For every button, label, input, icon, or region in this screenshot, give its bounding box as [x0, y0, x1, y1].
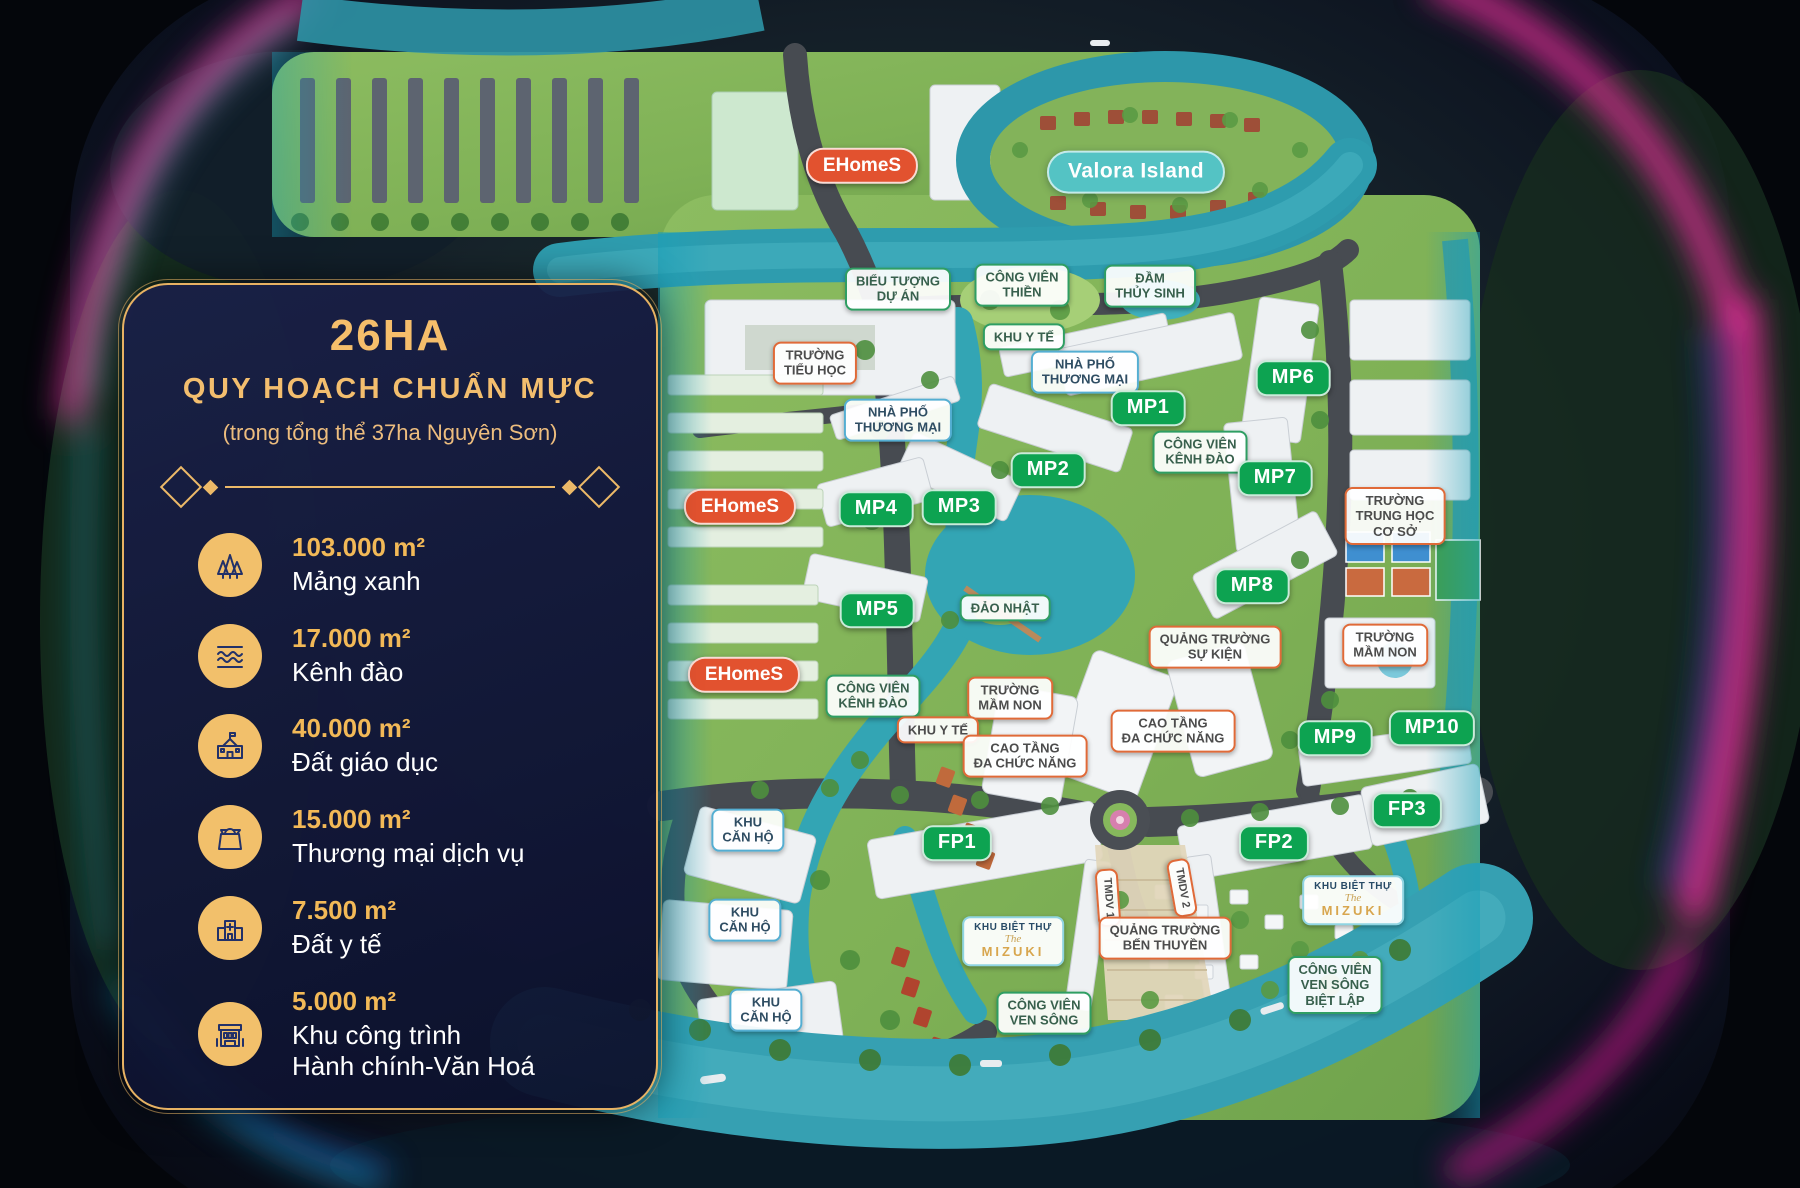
- mizuki-label-line: The: [1314, 893, 1392, 903]
- stat-value: 103.000 m²: [292, 532, 425, 563]
- stat-label: Thương mại dịch vụ: [292, 838, 524, 870]
- page-title: 26HA: [162, 311, 618, 361]
- map-label: KHU CĂN HỘ: [711, 809, 784, 852]
- map-label: BIỂU TƯỢNG DỰ ÁN: [845, 268, 951, 311]
- school-icon: [198, 714, 262, 778]
- trees-icon: [198, 533, 262, 597]
- zone-badge: MP3: [922, 489, 997, 525]
- stat-value: 7.500 m²: [292, 895, 396, 926]
- zone-badge: MP7: [1238, 460, 1313, 496]
- map-label: CÔNG VIÊN VEN SÔNG: [997, 992, 1092, 1035]
- map-label: ĐẢO NHẬT: [960, 594, 1051, 621]
- zone-badge: FP3: [1372, 792, 1442, 828]
- civic-building-icon: [198, 1002, 262, 1066]
- map-label: QUẢNG TRƯỜNG SỰ KIỆN: [1149, 626, 1282, 669]
- zone-badge: Valora Island: [1047, 151, 1225, 194]
- panel-stat-item: 5.000 m²Khu công trình Hành chính-Văn Ho…: [162, 986, 618, 1083]
- map-label: TRƯỜNG MẦM NON: [1342, 624, 1428, 667]
- zone-badge: MP4: [839, 491, 914, 527]
- map-label: NHÀ PHỐ THƯƠNG MẠI: [1031, 351, 1139, 394]
- map-label: CAO TẦNG ĐA CHỨC NĂNG: [1111, 710, 1236, 753]
- zone-badge: MP9: [1298, 720, 1373, 756]
- zone-badge: MP1: [1111, 390, 1186, 426]
- zone-badge: EHomeS: [688, 657, 800, 693]
- mizuki-label-line: MIZUKI: [974, 944, 1052, 959]
- zone-badge: MP5: [840, 592, 915, 628]
- diamond-ornament: [203, 479, 219, 495]
- zone-badge: MP8: [1215, 568, 1290, 604]
- panel-subtitle: QUY HOẠCH CHUẨN MỰC: [162, 373, 618, 406]
- zone-badge: EHomeS: [806, 148, 918, 184]
- zone-badge: MP10: [1389, 710, 1475, 746]
- map-label: KHU Y TẾ: [983, 323, 1065, 350]
- info-panel: 26HA QUY HOẠCH CHUẨN MỰC (trong tổng thể…: [122, 283, 658, 1110]
- map-label: CÔNG VIÊN THIỀN: [975, 264, 1070, 307]
- stat-label: Khu công trình Hành chính-Văn Hoá: [292, 1020, 535, 1083]
- panel-stat-item: 15.000 m²Thương mại dịch vụ: [162, 804, 618, 870]
- diamond-ornament: [562, 479, 578, 495]
- mizuki-label-line: MIZUKI: [1314, 903, 1392, 918]
- map-label: KHU CĂN HỘ: [729, 989, 802, 1032]
- panel-note: (trong tổng thể 37ha Nguyên Sơn): [162, 420, 618, 446]
- map-label: TRƯỜNG TRUNG HỌC CƠ SỞ: [1345, 487, 1446, 545]
- map-label: CÔNG VIÊN KÊNH ĐÀO: [826, 675, 921, 718]
- stat-value: 17.000 m²: [292, 623, 411, 654]
- zone-badge: MP2: [1011, 452, 1086, 488]
- map-label: TMDV 2: [1166, 857, 1199, 918]
- panel-stat-item: 103.000 m²Mảng xanh: [162, 532, 618, 598]
- diamond-ornament: [160, 466, 202, 508]
- stat-value: 5.000 m²: [292, 986, 535, 1017]
- map-label: ĐẦM THỦY SINH: [1104, 265, 1196, 308]
- shopping-bag-icon: [198, 805, 262, 869]
- map-label: KHU BIỆT THỰTheMIZUKI: [962, 916, 1064, 966]
- map-label: KHU CĂN HỘ: [708, 899, 781, 942]
- hospital-icon: [198, 896, 262, 960]
- divider-line: [225, 486, 555, 488]
- map-label: TRƯỜNG TIỂU HỌC: [773, 342, 857, 385]
- map-label: CÔNG VIÊN KÊNH ĐÀO: [1153, 431, 1248, 474]
- waves-icon: [198, 624, 262, 688]
- gold-divider: [166, 472, 614, 502]
- zone-badge: FP1: [922, 825, 992, 861]
- stat-label: Đất giáo dục: [292, 747, 438, 779]
- stat-label: Kênh đào: [292, 657, 411, 689]
- diamond-ornament: [578, 466, 620, 508]
- map-label: KHU BIỆT THỰTheMIZUKI: [1302, 875, 1404, 925]
- map-label: NHÀ PHỐ THƯƠNG MẠI: [844, 399, 952, 442]
- map-label: QUẢNG TRƯỜNG BẾN THUYỀN: [1099, 917, 1232, 960]
- stat-label: Mảng xanh: [292, 566, 425, 598]
- zone-badge: EHomeS: [684, 489, 796, 525]
- mizuki-label-line: The: [974, 934, 1052, 944]
- panel-stat-item: 17.000 m²Kênh đào: [162, 623, 618, 689]
- map-label: TRƯỜNG MẦM NON: [967, 677, 1053, 720]
- map-label: CAO TẦNG ĐA CHỨC NĂNG: [963, 735, 1088, 778]
- map-label: CÔNG VIÊN VEN SÔNG BIỆT LẬP: [1288, 956, 1383, 1014]
- stat-label: Đất y tế: [292, 929, 396, 961]
- stat-value: 15.000 m²: [292, 804, 524, 835]
- zone-badge: MP6: [1256, 360, 1331, 396]
- zone-badge: FP2: [1239, 825, 1309, 861]
- panel-stat-item: 7.500 m²Đất y tế: [162, 895, 618, 961]
- masterplan-poster: EHomeSValora IslandBIỂU TƯỢNG DỰ ÁNCÔNG …: [0, 0, 1800, 1188]
- stat-value: 40.000 m²: [292, 713, 438, 744]
- panel-stat-item: 40.000 m²Đất giáo dục: [162, 713, 618, 779]
- panel-stats-list: 103.000 m²Mảng xanh17.000 m²Kênh đào40.0…: [162, 532, 618, 1083]
